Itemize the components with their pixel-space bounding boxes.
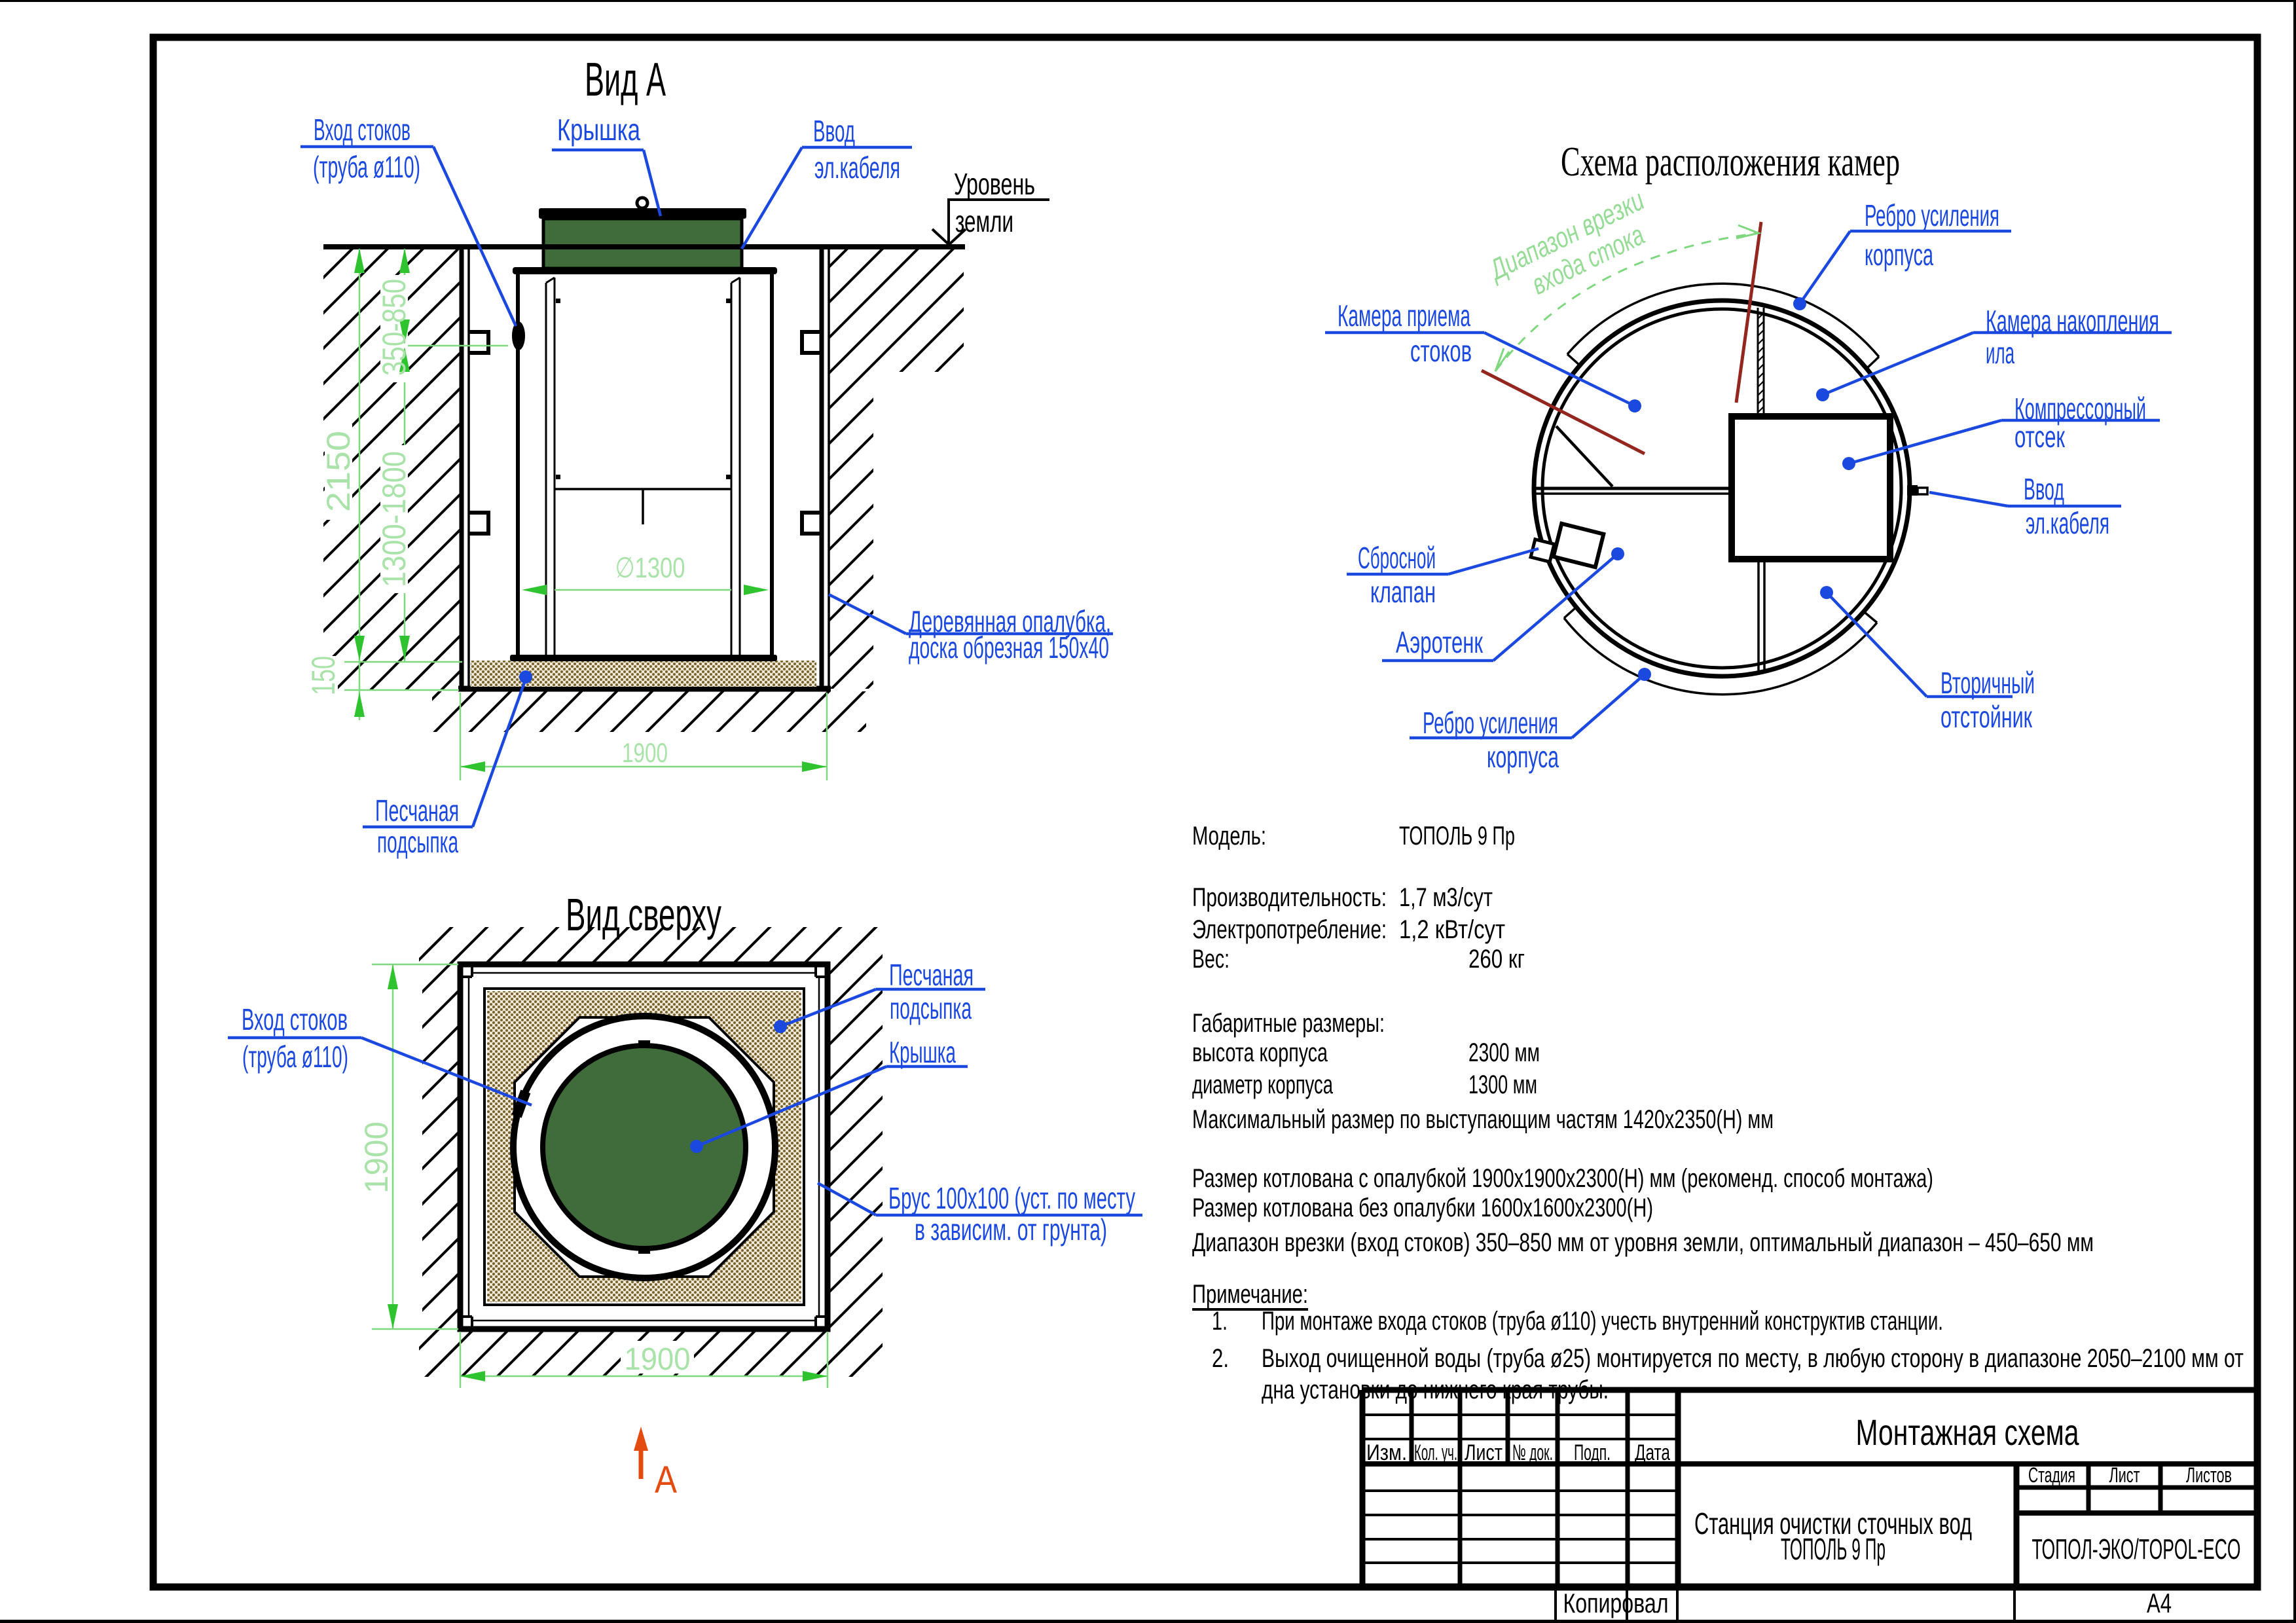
svg-text:корпуса: корпуса bbox=[1487, 740, 1559, 774]
svg-text:Размер котлована с опалубкой 1: Размер котлована с опалубкой 1900х1900х2… bbox=[1192, 1164, 1933, 1193]
svg-text:высота корпуса: высота корпуса bbox=[1192, 1038, 1328, 1067]
svg-text:(труба ø110): (труба ø110) bbox=[313, 150, 420, 184]
svg-text:2.: 2. bbox=[1212, 1344, 1229, 1373]
svg-text:1,2 кВт/сут: 1,2 кВт/сут bbox=[1399, 915, 1505, 944]
svg-text:Выход очищенной воды (труба ø2: Выход очищенной воды (труба ø25) монтиру… bbox=[1262, 1344, 2244, 1373]
svg-text:Вход стоков: Вход стоков bbox=[314, 113, 410, 147]
svg-text:150: 150 bbox=[305, 656, 342, 695]
svg-text:Лист: Лист bbox=[1465, 1440, 1503, 1465]
svg-text:Стадия: Стадия bbox=[2028, 1463, 2075, 1487]
svg-text:Листов: Листов bbox=[2186, 1463, 2232, 1487]
svg-text:(труба ø110): (труба ø110) bbox=[242, 1040, 348, 1074]
svg-text:клапан: клапан bbox=[1370, 575, 1436, 609]
svg-text:260 кг: 260 кг bbox=[1468, 945, 1525, 974]
svg-text:эл.кабеля: эл.кабеля bbox=[2026, 506, 2109, 540]
svg-text:Ребро усиления: Ребро усиления bbox=[1865, 198, 1999, 232]
svg-text:1.: 1. bbox=[1212, 1307, 1228, 1336]
svg-text:отсек: отсек bbox=[2014, 420, 2066, 454]
svg-text:Размер котлована без опалубки: Размер котлована без опалубки 1600х1600х… bbox=[1192, 1194, 1653, 1222]
svg-text:подсыпка: подсыпка bbox=[377, 825, 458, 859]
svg-text:Песчаная: Песчаная bbox=[375, 793, 459, 828]
svg-text:диаметр корпуса: диаметр корпуса bbox=[1192, 1070, 1334, 1099]
svg-text:№ док.: № док. bbox=[1512, 1440, 1553, 1465]
svg-text:земли: земли bbox=[955, 204, 1013, 238]
svg-text:1,7 м3/сут: 1,7 м3/сут bbox=[1399, 883, 1493, 912]
svg-text:1900: 1900 bbox=[622, 737, 668, 768]
svg-text:доска обрезная 150х40: доска обрезная 150х40 bbox=[909, 630, 1109, 665]
svg-text:ила: ила bbox=[1986, 336, 2014, 370]
svg-text:1900: 1900 bbox=[358, 1122, 395, 1194]
svg-text:Ребро усиления: Ребро усиления bbox=[1423, 706, 1558, 740]
svg-text:Максимальный размер по выступа: Максимальный размер по выступающим частя… bbox=[1192, 1105, 1774, 1134]
svg-text:∅1300: ∅1300 bbox=[615, 552, 685, 584]
svg-text:Изм.: Изм. bbox=[1366, 1440, 1407, 1465]
svg-text:Вес:: Вес: bbox=[1192, 945, 1230, 974]
svg-text:Примечание:: Примечание: bbox=[1192, 1280, 1308, 1309]
svg-text:Камера приема: Камера приема bbox=[1338, 299, 1470, 333]
svg-text:Модель:: Модель: bbox=[1192, 822, 1266, 850]
svg-text:Песчаная: Песчаная bbox=[889, 958, 974, 992]
svg-text:отстойник: отстойник bbox=[1941, 700, 2033, 734]
svg-text:Габаритные размеры:: Габаритные размеры: bbox=[1192, 1009, 1385, 1038]
svg-text:Ввод: Ввод bbox=[2024, 472, 2064, 506]
svg-text:2300 мм: 2300 мм bbox=[1468, 1038, 1540, 1067]
svg-text:Уровень: Уровень bbox=[954, 167, 1035, 201]
svg-text:подсыпка: подсыпка bbox=[890, 991, 972, 1025]
svg-text:А: А bbox=[655, 1459, 677, 1501]
svg-text:ТОПОЛЬ 9 Пр: ТОПОЛЬ 9 Пр bbox=[1781, 1532, 1886, 1566]
svg-text:Производительность:: Производительность: bbox=[1192, 883, 1387, 912]
svg-text:ТОПОЛЬ 9 Пр: ТОПОЛЬ 9 Пр bbox=[1399, 822, 1515, 850]
svg-text:Вторичный: Вторичный bbox=[1941, 666, 2035, 700]
svg-text:Крышка: Крышка bbox=[557, 113, 640, 147]
svg-text:350-850: 350-850 bbox=[376, 279, 412, 376]
svg-text:Сбросной: Сбросной bbox=[1358, 541, 1436, 575]
svg-text:Копировал: Копировал bbox=[1563, 1588, 1669, 1618]
svg-text:Электропотребление:: Электропотребление: bbox=[1192, 915, 1387, 944]
svg-text:При монтаже входа стоков (тру: При монтаже входа стоков (труба ø110) уч… bbox=[1262, 1307, 1943, 1336]
svg-text:2150: 2150 bbox=[320, 431, 357, 512]
svg-text:Схема расположения камер: Схема расположения камер bbox=[1561, 138, 1900, 185]
svg-text:1300-1800: 1300-1800 bbox=[376, 451, 412, 587]
svg-text:А4: А4 bbox=[2147, 1588, 2172, 1618]
svg-text:Монтажная схема: Монтажная схема bbox=[1856, 1412, 2080, 1453]
svg-text:Брус 100х100 (уст. по месту: Брус 100х100 (уст. по месту bbox=[888, 1181, 1135, 1215]
svg-text:Вид сверху: Вид сверху bbox=[566, 889, 721, 940]
svg-text:Подп.: Подп. bbox=[1574, 1440, 1611, 1465]
svg-text:1900: 1900 bbox=[625, 1342, 691, 1377]
svg-text:Крышка: Крышка bbox=[889, 1035, 956, 1069]
svg-text:стоков: стоков bbox=[1410, 334, 1472, 368]
svg-text:Ввод: Ввод bbox=[813, 114, 855, 148]
svg-text:1300 мм: 1300 мм bbox=[1468, 1070, 1537, 1099]
svg-text:Аэротенк: Аэротенк bbox=[1396, 625, 1484, 659]
svg-text:Диапазон врезки (вход стоков): Диапазон врезки (вход стоков) 350–850 мм… bbox=[1192, 1228, 2094, 1257]
svg-text:Кол. уч.: Кол. уч. bbox=[1414, 1440, 1457, 1465]
svg-text:ТОПОЛ-ЭКО/TOPOL-ECO: ТОПОЛ-ЭКО/TOPOL-ECO bbox=[2032, 1533, 2241, 1565]
svg-text:Лист: Лист bbox=[2109, 1463, 2140, 1487]
svg-text:Вход стоков: Вход стоков bbox=[242, 1002, 348, 1036]
svg-text:корпуса: корпуса bbox=[1865, 238, 1933, 272]
svg-text:эл.кабеля: эл.кабеля bbox=[814, 151, 900, 185]
svg-text:Дата: Дата bbox=[1635, 1440, 1670, 1465]
svg-text:в зависим. от грунта): в зависим. от грунта) bbox=[915, 1213, 1107, 1247]
svg-text:Вид А: Вид А bbox=[585, 54, 666, 106]
